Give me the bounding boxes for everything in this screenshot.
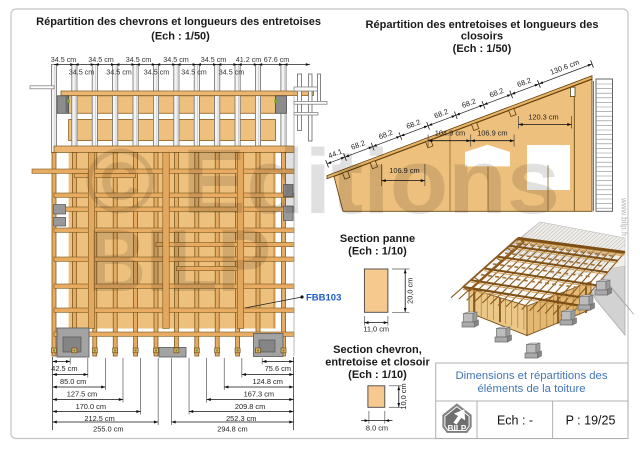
svg-text:67.6 cm: 67.6 cm [264,55,290,64]
svg-text:120.3 cm: 120.3 cm [528,112,558,121]
svg-text:(Ech : 1/10): (Ech : 1/10) [348,246,407,258]
svg-text:Section chevron,: Section chevron, [333,344,422,356]
svg-text:41.2 cm: 41.2 cm [236,55,262,64]
svg-text:éléments de la toiture: éléments de la toiture [477,383,585,395]
svg-text:Section panne: Section panne [340,233,415,245]
svg-text:FBB103: FBB103 [306,293,341,304]
svg-text:Ech : -: Ech : - [497,414,533,428]
svg-text:34.5 cm: 34.5 cm [88,55,114,64]
svg-text:34.5 cm: 34.5 cm [69,68,95,77]
svg-text:34.5 cm: 34.5 cm [201,55,227,64]
svg-text:209.8 cm: 209.8 cm [235,402,265,411]
svg-text:124.8 cm: 124.8 cm [252,377,282,386]
svg-text:11,0 cm: 11,0 cm [363,325,389,334]
svg-text:Dimensions et répartitions des: Dimensions et répartitions des [456,370,608,382]
svg-text:(Ech : 1/50): (Ech : 1/50) [453,43,512,55]
svg-text:34.5 cm: 34.5 cm [106,68,132,77]
svg-text:294.8 cm: 294.8 cm [217,425,247,434]
svg-text:entretoise et closoir: entretoise et closoir [325,357,430,369]
svg-text:34.5 cm: 34.5 cm [126,55,152,64]
svg-text:BILP: BILP [448,424,467,433]
svg-text:www.bilp.fr: www.bilp.fr [620,197,629,237]
svg-text:42.5 cm: 42.5 cm [51,364,77,373]
svg-text:255.0 cm: 255.0 cm [93,425,123,434]
svg-text:Répartition des entretoises et: Répartition des entretoises et longueurs… [366,19,599,31]
svg-text:8.0 cm: 8.0 cm [366,424,388,433]
svg-text:34.5 cm: 34.5 cm [163,55,189,64]
svg-text:167.3 cm: 167.3 cm [244,390,274,399]
svg-text:34.5 cm: 34.5 cm [181,68,207,77]
svg-text:(Ech : 1/50): (Ech : 1/50) [151,31,210,43]
svg-text:BILP: BILP [88,211,271,310]
svg-text:34.5 cm: 34.5 cm [144,68,170,77]
svg-text:(Ech : 1/10): (Ech : 1/10) [348,369,407,381]
svg-text:85.0 cm: 85.0 cm [60,377,86,386]
svg-text:closoirs: closoirs [461,31,503,43]
svg-text:10,0 cm: 10,0 cm [399,383,408,409]
svg-text:34.5 cm: 34.5 cm [51,55,77,64]
svg-text:P : 19/25: P : 19/25 [566,414,616,428]
svg-text:170.0 cm: 170.0 cm [76,402,106,411]
svg-text:34.5 cm: 34.5 cm [219,68,245,77]
svg-text:75.6 cm: 75.6 cm [265,364,291,373]
svg-text:Répartition des chevrons et lo: Répartition des chevrons et longueurs de… [36,16,321,28]
svg-text:127.5 cm: 127.5 cm [67,390,97,399]
svg-text:20,0 cm: 20,0 cm [406,278,415,304]
